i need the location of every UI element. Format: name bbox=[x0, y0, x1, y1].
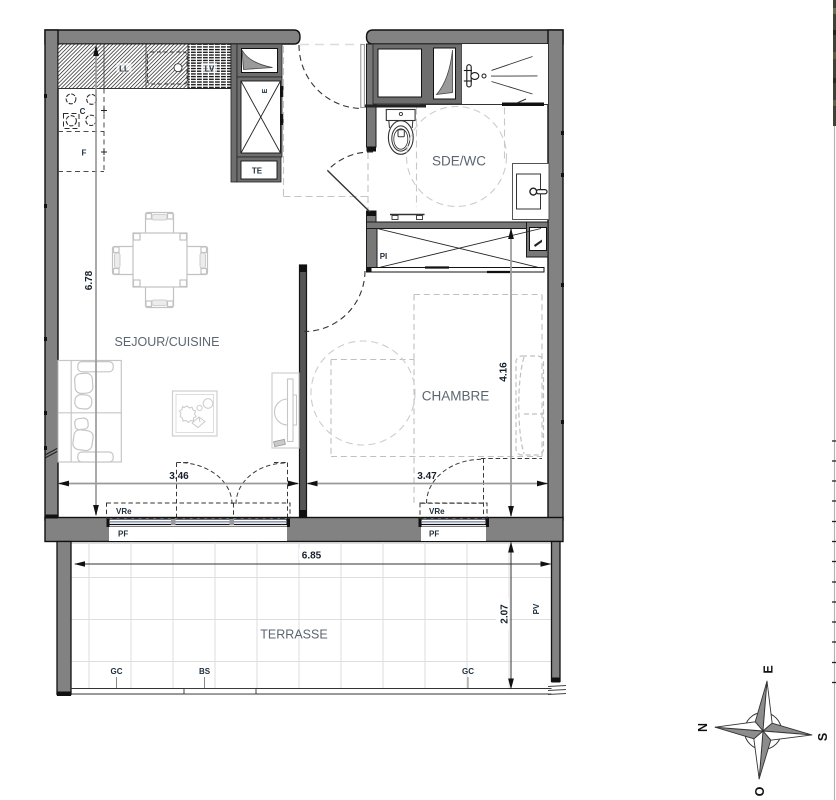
svg-text:S: S bbox=[816, 733, 830, 741]
svg-text:E: E bbox=[262, 88, 269, 93]
svg-text:PF: PF bbox=[118, 530, 128, 539]
svg-text:LL: LL bbox=[119, 65, 129, 74]
svg-text:3.47: 3.47 bbox=[417, 471, 437, 482]
svg-text:N: N bbox=[696, 723, 710, 732]
svg-text:LV: LV bbox=[205, 65, 215, 74]
svg-text:TERRASSE: TERRASSE bbox=[260, 628, 327, 642]
svg-text:VRe: VRe bbox=[116, 507, 132, 516]
svg-text:TE: TE bbox=[252, 167, 263, 176]
svg-text:VRe: VRe bbox=[429, 507, 445, 516]
svg-text:E: E bbox=[762, 665, 776, 673]
svg-text:F: F bbox=[82, 149, 87, 158]
svg-text:SDE/WC: SDE/WC bbox=[432, 154, 486, 169]
svg-text:GC: GC bbox=[462, 667, 474, 676]
svg-text:CHAMBRE: CHAMBRE bbox=[422, 389, 490, 404]
svg-text:GC: GC bbox=[111, 667, 123, 676]
svg-text:C: C bbox=[80, 107, 86, 116]
svg-text:6.85: 6.85 bbox=[302, 551, 322, 562]
svg-text:6.78: 6.78 bbox=[84, 270, 95, 290]
svg-text:4.16: 4.16 bbox=[499, 362, 510, 382]
svg-text:O: O bbox=[753, 786, 767, 796]
svg-text:PF: PF bbox=[429, 530, 439, 539]
svg-text:PV: PV bbox=[532, 603, 541, 614]
svg-text:2.07: 2.07 bbox=[500, 604, 511, 624]
svg-text:PI: PI bbox=[380, 252, 388, 261]
svg-text:SEJOUR/CUISINE: SEJOUR/CUISINE bbox=[115, 335, 220, 349]
svg-text:3.46: 3.46 bbox=[169, 471, 189, 482]
svg-text:BS: BS bbox=[199, 667, 211, 676]
